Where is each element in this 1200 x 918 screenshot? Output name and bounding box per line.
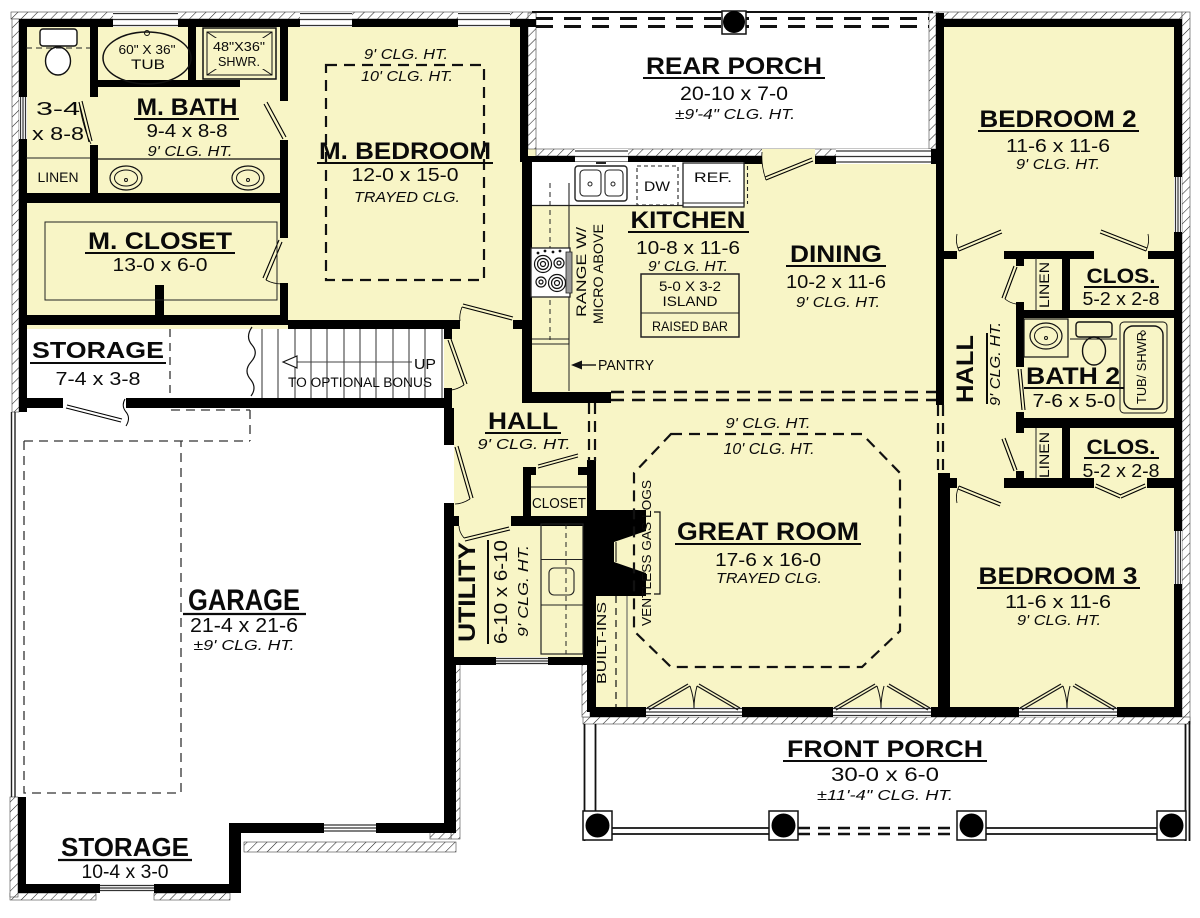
svg-text:M. BATH: M. BATH <box>137 94 238 121</box>
svg-text:60" X 36": 60" X 36" <box>119 43 176 57</box>
svg-text:11-6 x 11-6: 11-6 x 11-6 <box>1005 592 1111 612</box>
svg-text:10-4 x 3-0: 10-4 x 3-0 <box>82 862 169 883</box>
svg-text:13-0 x 6-0: 13-0 x 6-0 <box>113 255 208 275</box>
svg-text:ISLAND: ISLAND <box>663 293 718 309</box>
svg-text:TO OPTIONAL BONUS: TO OPTIONAL BONUS <box>288 375 432 390</box>
svg-text:9' CLG. HT.: 9' CLG. HT. <box>1017 612 1101 629</box>
svg-text:REF.: REF. <box>694 169 732 185</box>
svg-text:x 8-8: x 8-8 <box>32 124 84 144</box>
svg-text:TUB/ SHWR: TUB/ SHWR <box>1134 332 1149 404</box>
svg-text:48"X36": 48"X36" <box>213 40 265 54</box>
svg-text:9' CLG. HT.: 9' CLG. HT. <box>987 322 1004 406</box>
svg-text:6-10 x 6-10: 6-10 x 6-10 <box>491 540 511 644</box>
svg-text:TRAYED CLG.: TRAYED CLG. <box>716 570 822 587</box>
svg-text:BUILT-INS: BUILT-INS <box>594 602 609 684</box>
svg-text:RAISED BAR: RAISED BAR <box>652 318 728 334</box>
svg-text:LINEN: LINEN <box>1036 262 1052 308</box>
svg-text:PANTRY: PANTRY <box>598 357 654 374</box>
svg-text:9-4 x 8-8: 9-4 x 8-8 <box>147 121 228 141</box>
svg-text:FRONT PORCH: FRONT PORCH <box>787 736 983 763</box>
svg-text:REAR PORCH: REAR PORCH <box>646 53 822 80</box>
svg-text:TUB: TUB <box>131 56 165 72</box>
svg-text:5-2 x 2-8: 5-2 x 2-8 <box>1083 461 1160 481</box>
svg-text:9' CLG. HT.: 9' CLG. HT. <box>515 545 532 637</box>
svg-text:3-4: 3-4 <box>36 99 80 119</box>
svg-text:CLOSET: CLOSET <box>532 495 586 512</box>
svg-text:STORAGE: STORAGE <box>61 832 189 862</box>
svg-text:UP: UP <box>414 356 436 373</box>
svg-text:9' CLG. HT.: 9' CLG. HT. <box>148 143 233 160</box>
svg-text:HALL: HALL <box>488 408 558 435</box>
svg-text:11-6 x 11-6: 11-6 x 11-6 <box>1006 136 1110 156</box>
svg-text:9' CLG. HT.: 9' CLG. HT. <box>796 294 880 311</box>
svg-text:±9'-4" CLG. HT.: ±9'-4" CLG. HT. <box>675 106 795 123</box>
svg-text:9' CLG. HT.: 9' CLG. HT. <box>726 415 811 432</box>
svg-text:10-8 x 11-6: 10-8 x 11-6 <box>636 238 740 258</box>
svg-text:GARAGE: GARAGE <box>188 584 300 617</box>
svg-text:GREAT ROOM: GREAT ROOM <box>677 518 859 546</box>
svg-text:7-6 x 5-0: 7-6 x 5-0 <box>1033 391 1116 411</box>
svg-text:BEDROOM 2: BEDROOM 2 <box>980 106 1137 133</box>
svg-text:7-4 x 3-8: 7-4 x 3-8 <box>56 369 141 389</box>
svg-text:17-6 x 16-0: 17-6 x 16-0 <box>715 550 821 570</box>
svg-text:5-2 x 2-8: 5-2 x 2-8 <box>1083 289 1160 309</box>
svg-text:5-0 X 3-2: 5-0 X 3-2 <box>659 278 721 294</box>
svg-text:LINEN: LINEN <box>38 169 79 185</box>
svg-text:RANGE W/: RANGE W/ <box>573 227 589 317</box>
svg-text:9' CLG. HT.: 9' CLG. HT. <box>648 258 728 275</box>
svg-text:30-0 x 6-0: 30-0 x 6-0 <box>831 765 939 786</box>
svg-text:9' CLG. HT.: 9' CLG. HT. <box>478 436 571 453</box>
svg-text:STORAGE: STORAGE <box>32 337 164 363</box>
svg-text:21-4 x 21-6: 21-4 x 21-6 <box>190 615 298 637</box>
svg-text:10' CLG. HT.: 10' CLG. HT. <box>361 68 453 85</box>
svg-text:KITCHEN: KITCHEN <box>631 207 746 234</box>
svg-text:CLOS.: CLOS. <box>1087 436 1156 459</box>
svg-text:TRAYED CLG.: TRAYED CLG. <box>354 189 460 206</box>
svg-text:BATH 2: BATH 2 <box>1026 363 1120 390</box>
svg-text:SHWR.: SHWR. <box>218 55 260 69</box>
svg-text:±11'-4" CLG. HT.: ±11'-4" CLG. HT. <box>817 787 953 804</box>
svg-text:HALL: HALL <box>952 335 979 403</box>
svg-text:DINING: DINING <box>790 241 882 268</box>
svg-text:±9' CLG. HT.: ±9' CLG. HT. <box>194 637 295 654</box>
svg-text:CLOS.: CLOS. <box>1087 265 1156 288</box>
svg-text:20-10 x 7-0: 20-10 x 7-0 <box>680 84 788 105</box>
svg-text:9' CLG. HT.: 9' CLG. HT. <box>364 46 448 63</box>
svg-text:VENTLESS GAS LOGS: VENTLESS GAS LOGS <box>639 480 654 626</box>
svg-text:9' CLG. HT.: 9' CLG. HT. <box>1016 156 1100 173</box>
svg-text:UTILITY: UTILITY <box>454 542 481 642</box>
svg-text:12-0 x 15-0: 12-0 x 15-0 <box>352 165 459 185</box>
svg-text:LINEN: LINEN <box>1036 432 1052 478</box>
svg-text:M. CLOSET: M. CLOSET <box>88 228 232 255</box>
svg-text:10-2 x 11-6: 10-2 x 11-6 <box>786 272 886 292</box>
svg-text:BEDROOM 3: BEDROOM 3 <box>979 563 1138 590</box>
svg-text:DW: DW <box>644 178 671 194</box>
svg-text:10' CLG. HT.: 10' CLG. HT. <box>724 441 815 458</box>
svg-text:M. BEDROOM: M. BEDROOM <box>319 138 491 165</box>
svg-text:MICRO ABOVE: MICRO ABOVE <box>590 224 606 324</box>
